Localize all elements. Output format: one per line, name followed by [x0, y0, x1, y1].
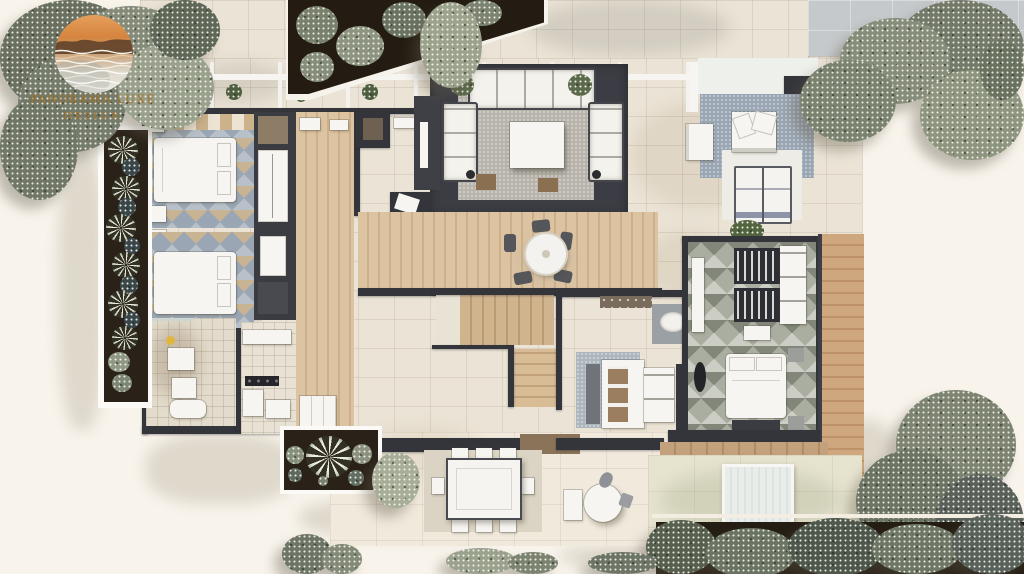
cushion [752, 112, 776, 135]
shrub [348, 470, 364, 486]
outdoor-chair [500, 520, 516, 532]
pavement-shadow [530, 0, 730, 56]
outdoor-dining-table [446, 458, 522, 520]
island-wood-panels [608, 366, 628, 422]
shrub [352, 444, 372, 464]
garden-bed [284, 430, 378, 490]
wardrobe-door [260, 236, 286, 276]
outdoor-chair [432, 478, 444, 494]
shrubs-south [282, 532, 702, 574]
tree-northeast [800, 0, 1024, 176]
kitchen-drawers [644, 368, 674, 422]
shrub [288, 468, 302, 482]
duvet-fold [732, 380, 780, 381]
floor-plan-scene: PANORAMA LUXE DESIGN [0, 0, 1024, 574]
patio-bench [564, 490, 582, 520]
kitchen-island [602, 360, 644, 428]
bathtub [170, 400, 206, 418]
logo-mark [54, 14, 134, 94]
palm-plant [306, 436, 352, 478]
plant-pot [568, 74, 592, 96]
stair-landing [436, 295, 460, 345]
brand-subtitle: DESIGN [8, 110, 178, 122]
ground-shadow [146, 434, 296, 504]
corridor-floor [296, 112, 354, 434]
armchair [686, 124, 713, 160]
pillow [730, 358, 754, 370]
vanity-sink [168, 348, 194, 370]
outdoor-chair [522, 478, 534, 494]
bed-2 [154, 252, 236, 314]
stool [166, 336, 175, 345]
stairs-upper [460, 295, 554, 345]
loveseat [732, 112, 776, 152]
fridge-column [586, 364, 600, 424]
cooktop [245, 376, 279, 386]
south-wood-trim [660, 442, 828, 455]
dining-chair [504, 234, 516, 252]
pillow [757, 358, 781, 370]
side-table [538, 178, 558, 192]
tv-screen [420, 122, 428, 168]
round-patio-table [584, 484, 622, 522]
floor-lamp [592, 170, 601, 179]
wardrobe-shelf [258, 116, 288, 144]
outdoor-chair [476, 520, 492, 532]
closet-mirror [692, 258, 704, 332]
kitchen-shelf [600, 296, 652, 308]
hanging-plant [226, 84, 242, 100]
wardrobe [254, 112, 296, 320]
hall-cabinet [300, 396, 336, 426]
sun-lounger [734, 166, 764, 224]
vanity-sink [172, 378, 196, 398]
pillow [218, 257, 230, 279]
kitchenette-counter [243, 330, 291, 344]
wardrobe-hangers [734, 248, 780, 284]
wardrobe-hangers [734, 288, 780, 322]
entry-planter [356, 112, 390, 148]
closet-shelving [780, 246, 806, 324]
hanging-plant [362, 84, 378, 100]
stairs-lower [514, 349, 556, 407]
coffee-table [510, 122, 564, 168]
bed-bench [732, 420, 780, 430]
side-table [476, 174, 496, 190]
wardrobe-shelf [258, 282, 288, 314]
dining-chair [531, 219, 550, 233]
tv-unit [694, 362, 706, 392]
floor-lamp [466, 170, 475, 179]
nightstand [788, 416, 804, 430]
closet-bench [744, 326, 770, 340]
pillow [218, 284, 230, 306]
master-bed [726, 354, 786, 418]
shower-glass [146, 318, 194, 321]
base-cabinet [243, 390, 263, 416]
brand-name: PANORAMA LUXE [8, 92, 178, 107]
dining-table [526, 234, 566, 274]
wardrobe-door [258, 150, 288, 222]
brand-logo: PANORAMA LUXE DESIGN [8, 8, 178, 132]
outdoor-chair [452, 520, 468, 532]
base-cabinet [266, 400, 290, 418]
shrub [286, 446, 304, 464]
shrub [318, 476, 328, 486]
sun-lounger [762, 166, 792, 224]
nightstand [788, 348, 804, 362]
